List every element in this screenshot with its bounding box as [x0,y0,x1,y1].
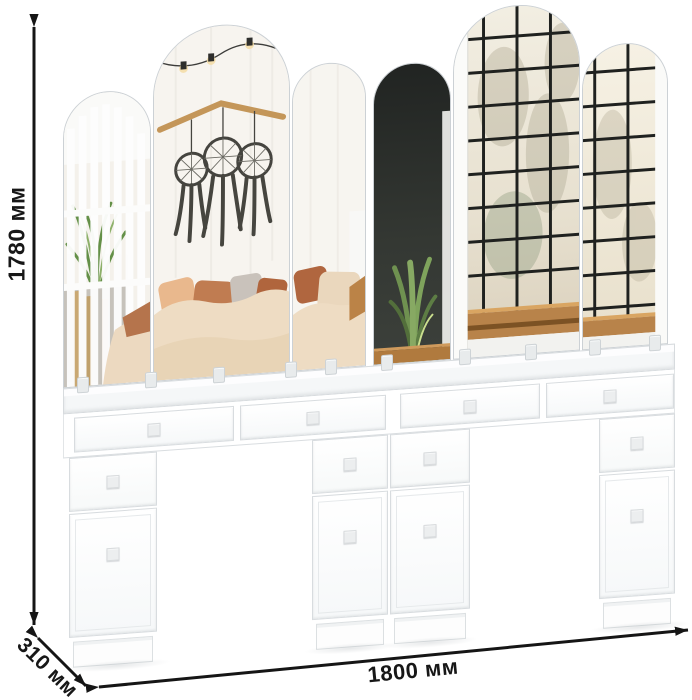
pedestal-left [69,452,157,668]
mirror-panel-left-center [153,20,290,382]
mirror-clip [213,367,225,384]
height-dimension-label: 1780 мм [4,186,31,281]
product-dimension-illustration: 1780 мм 310 мм 1800 мм [0,0,692,700]
apron-drawer-3 [400,383,540,428]
mirror-clip [381,354,393,371]
mirror-clip [325,358,337,375]
mirror-clip [459,349,471,366]
reflection-dark-wall-plant [374,61,450,365]
pedestal-drawer [390,429,470,489]
door-knob [344,530,357,544]
mirror-clip [589,339,601,356]
dressing-table [63,0,675,668]
door-knob [107,547,120,561]
apron-drawer-2 [240,395,386,441]
pedestal-door [312,491,388,621]
mirror-panel-left-inner [292,60,366,371]
apron-drawer-4 [546,374,674,418]
pedestal-door [69,508,157,638]
mirror-clip [285,361,297,378]
mirror-panel-right-outer [582,40,668,350]
door-knob [631,509,644,523]
reflection-grid-window-right [583,41,667,349]
reflection-dreamcatchers-bed [154,21,289,381]
drawer-knob [631,436,644,450]
pedestal-drawer [312,435,388,495]
mirror-clip [77,377,89,394]
mirror-clip [145,372,157,389]
door-knob [424,524,437,538]
width-dimension-label: 1800 мм [366,654,459,689]
pedestal-right [599,414,675,630]
drawer-knob [107,475,120,489]
drawer-knob [424,452,437,466]
mirror-assembly [63,0,675,388]
mirror-panel-right-center [453,1,580,360]
apron-drawer-1 [74,406,234,453]
mirror-panel-right-inner [373,60,451,366]
pedestal-door [599,470,675,600]
drawer-knob [604,389,617,403]
drawer-knob [344,457,357,471]
reflection-grid-window [454,2,579,359]
pedestal-center-right [390,429,470,645]
mirror-clip [649,335,661,352]
pedestal-drawer [599,414,675,474]
pedestal-base [63,414,675,669]
reflection-screen-plant [64,89,150,387]
drawer-knob [148,422,161,436]
drawer-knob [307,411,320,425]
reflection-bed-corner [293,61,365,370]
mirror-panel-left-outer [63,88,151,388]
pedestal-door [390,485,470,615]
pedestal-center-left [312,435,388,651]
pedestal-drawer [69,452,157,512]
drawer-knob [464,399,477,413]
mirror-clip [525,344,537,361]
